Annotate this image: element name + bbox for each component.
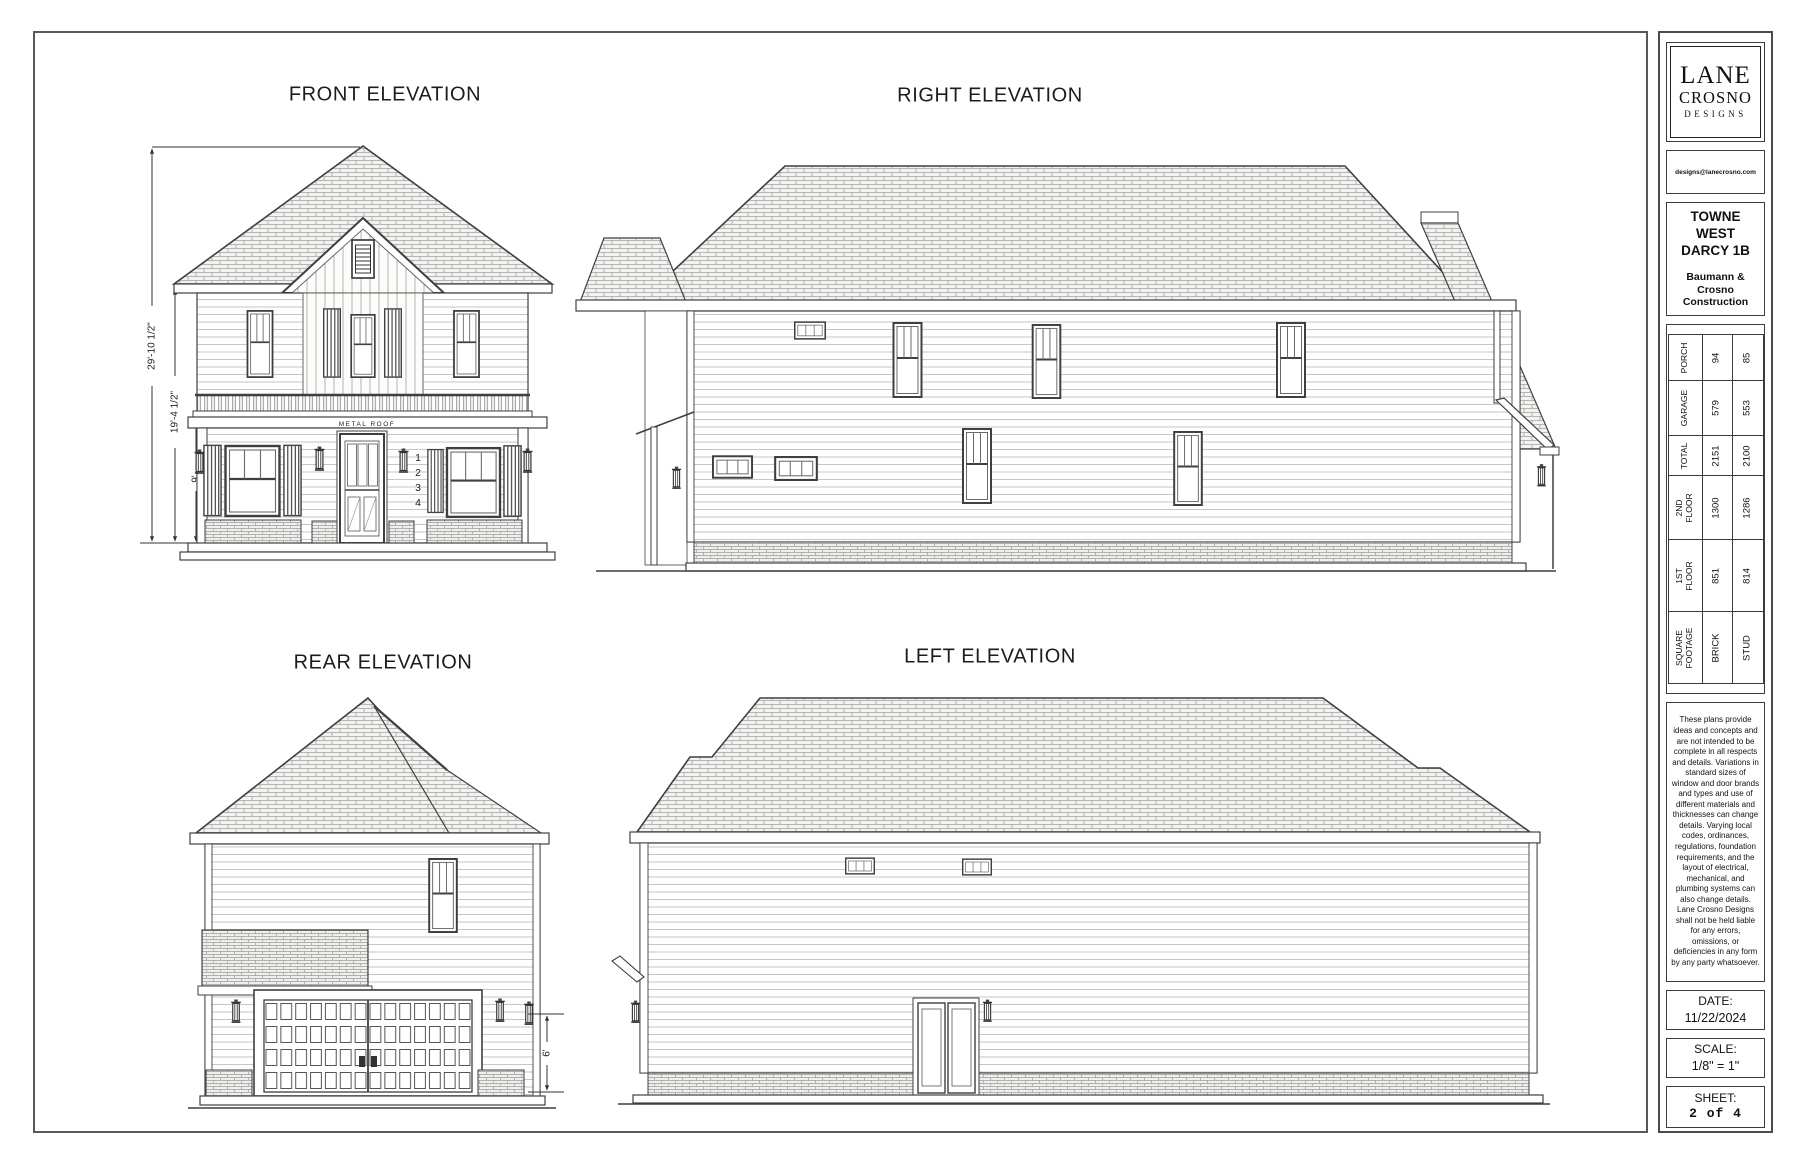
front-upper-center-window	[351, 315, 375, 377]
logo-line-3: DESIGNS	[1684, 108, 1747, 121]
square-footage-table: PORCH 94 85 GARAGE 579 553 TOTAL 2151 21…	[1668, 334, 1764, 684]
sqft-stud-cell: 85	[1733, 335, 1763, 381]
left-sconce-2	[983, 1000, 992, 1022]
sqft-brick-cell: 851	[1703, 540, 1733, 612]
left-upper-small-window-2	[963, 859, 992, 875]
project-name: TOWNE WEST DARCY 1B	[1671, 209, 1760, 260]
sqft-brick-cell: 1300	[1703, 476, 1733, 540]
rear-eave-fascia	[190, 833, 549, 844]
sheet-value: 2 of 4	[1689, 1106, 1742, 1123]
right-upper-window-3	[1277, 323, 1305, 397]
right-upper-window-1	[894, 323, 922, 397]
front-lower-right-shutter-r	[504, 446, 521, 516]
left-main-roof	[637, 698, 1530, 832]
disclaimer-box: These plans provide ideas and concepts a…	[1666, 702, 1765, 982]
right-lower-small-window-2	[775, 457, 817, 480]
front-brick-base-2	[312, 521, 337, 543]
right-porch-post	[651, 427, 657, 565]
rear-sconce-3	[524, 1001, 534, 1024]
front-upper-center-shutter-right	[385, 309, 402, 377]
sqft-row-label: 2ND FLOOR	[1669, 476, 1703, 540]
left-porch-brace	[612, 956, 644, 982]
front-foundation-step	[180, 552, 555, 560]
builder-name: Baumann & Crosno Construction	[1671, 271, 1760, 309]
front-lower-right-shutter-l	[428, 450, 443, 513]
sqft-row-label: GARAGE	[1669, 381, 1703, 436]
sheet-box: SHEET: 2 of 4	[1666, 1086, 1765, 1128]
right-upper-window-2	[1033, 325, 1061, 398]
front-brick-base-4	[427, 520, 522, 543]
sqft-brick-cell: 94	[1703, 335, 1733, 381]
logo-line-2: CROSNO	[1679, 88, 1752, 108]
right-upper-small-window	[795, 322, 825, 339]
sqft-stud-cell: 814	[1733, 540, 1763, 612]
front-brick-base-1	[205, 520, 301, 543]
front-upper-center-shutter-left	[324, 309, 341, 377]
right-elevation-title: RIGHT ELEVATION	[897, 85, 1083, 108]
left-brick-strip	[648, 1073, 1529, 1095]
sqft-stud-cell: 1286	[1733, 476, 1763, 540]
sqft-brick-cell: 2151	[1703, 436, 1733, 476]
rear-elevation-title: REAR ELEVATION	[294, 652, 473, 675]
left-elevation-title: LEFT ELEVATION	[904, 646, 1076, 669]
rear-brick-band	[202, 930, 368, 986]
disclaimer-text: These plans provide ideas and concepts a…	[1671, 715, 1760, 968]
plan-sheet: 29'-10 1/2" 19'-4 1/2" 9'	[0, 0, 1800, 1165]
rear-elevation-drawing: 6'	[188, 698, 564, 1108]
front-door	[337, 431, 387, 543]
elevation-drawings: 29'-10 1/2" 19'-4 1/2" 9'	[33, 31, 1648, 1133]
front-lower-left-window	[226, 446, 280, 516]
front-sconce-3	[399, 449, 409, 473]
sqft-stud-cell: 2100	[1733, 436, 1763, 476]
rear-upper-window	[429, 859, 457, 932]
date-value: 11/22/2024	[1685, 1010, 1747, 1026]
right-corner-board-right	[1512, 311, 1520, 542]
rear-brick-base-right	[478, 1070, 524, 1096]
left-french-door	[913, 998, 979, 1097]
sqft-row-label: TOTAL	[1669, 436, 1703, 476]
right-garage-sconce	[1537, 464, 1546, 486]
front-lower-left-shutter-l	[204, 445, 221, 515]
designer-email-box: designs@lanecrosno.com	[1666, 150, 1765, 194]
front-lower-left-shutter-r	[284, 445, 301, 515]
scale-label: SCALE:	[1694, 1042, 1737, 1058]
front-sconce-4	[523, 449, 533, 473]
sqft-header-stud: STUD	[1733, 612, 1763, 683]
front-porch-floor	[188, 543, 547, 552]
front-dim-overall-label: 29'-10 1/2"	[147, 322, 158, 370]
left-corner-board-left	[640, 843, 648, 1073]
sqft-header-label: SQUARE FOOTAGE	[1669, 612, 1703, 683]
front-upper-left-window	[247, 311, 272, 377]
left-eave-fascia	[630, 832, 1540, 843]
sqft-brick-cell: 579	[1703, 381, 1733, 436]
left-upper-small-window-1	[846, 858, 875, 874]
front-sconce-1	[195, 450, 205, 474]
left-foundation	[633, 1095, 1543, 1103]
front-sconce-2	[315, 447, 325, 471]
sqft-row-label: 1ST FLOOR	[1669, 540, 1703, 612]
right-corner-board-left	[687, 311, 694, 542]
project-box: TOWNE WEST DARCY 1B Baumann & Crosno Con…	[1666, 202, 1765, 316]
front-elevation-title: FRONT ELEVATION	[289, 84, 481, 107]
sqft-row-label: PORCH	[1669, 335, 1703, 381]
designer-email: designs@lanecrosno.com	[1675, 169, 1756, 176]
scale-value: 1/8" = 1"	[1692, 1058, 1739, 1074]
right-lower-small-window-1	[713, 456, 752, 477]
front-elevation-drawing: 29'-10 1/2" 19'-4 1/2" 9'	[140, 146, 555, 560]
right-foundation	[686, 563, 1526, 571]
right-brick-strip	[694, 542, 1512, 563]
right-main-roof	[640, 166, 1470, 302]
left-corner-board-right	[1529, 843, 1537, 1073]
left-elevation-drawing	[612, 698, 1550, 1104]
right-garage-roof-cap	[1421, 212, 1458, 223]
scale-box: SCALE: 1/8" = 1"	[1666, 1038, 1765, 1078]
front-lower-right-window	[447, 448, 500, 517]
rear-garage-door	[254, 990, 482, 1096]
date-box: DATE: 11/22/2024	[1666, 990, 1765, 1030]
rear-brick-base-left	[206, 1070, 252, 1096]
date-label: DATE:	[1698, 994, 1732, 1010]
rear-sconce-2	[495, 998, 505, 1021]
rear-dim-garage-label: 6'	[542, 1049, 553, 1057]
rear-sconce-1	[231, 999, 241, 1022]
left-wall	[640, 843, 1537, 1073]
sqft-header-brick: BRICK	[1703, 612, 1733, 683]
logo-box: LANE CROSNO DESIGNS	[1666, 42, 1765, 142]
right-lower-window-1	[963, 429, 991, 503]
gable-vent	[352, 240, 374, 278]
front-dim-second-label: 19'-4 1/2"	[170, 390, 181, 433]
right-elevation-drawing	[576, 166, 1559, 571]
front-upper-right-window	[454, 311, 479, 377]
front-balcony-railing	[193, 395, 532, 417]
left-sconce-1	[631, 1001, 640, 1023]
logo-line-1: LANE	[1680, 63, 1751, 88]
lane-crosno-logo: LANE CROSNO DESIGNS	[1670, 46, 1761, 138]
right-porch-roof	[580, 238, 686, 302]
sqft-stud-cell: 553	[1733, 381, 1763, 436]
right-eave-fascia	[576, 300, 1516, 311]
front-brick-base-3	[389, 521, 414, 543]
square-footage-table-box: PORCH 94 85 GARAGE 579 553 TOTAL 2151 21…	[1666, 324, 1765, 694]
title-block: LANE CROSNO DESIGNS designs@lanecrosno.c…	[1658, 31, 1773, 1133]
metal-roof-label: METAL ROOF	[339, 421, 396, 428]
rear-slab	[200, 1096, 545, 1105]
right-porch-sconce	[672, 467, 681, 489]
rear-corner-board-right	[533, 844, 540, 1096]
house-number: 1234	[412, 452, 424, 512]
right-lower-window-2	[1174, 432, 1202, 505]
sheet-label: SHEET:	[1694, 1091, 1736, 1107]
right-wall	[687, 311, 1520, 542]
